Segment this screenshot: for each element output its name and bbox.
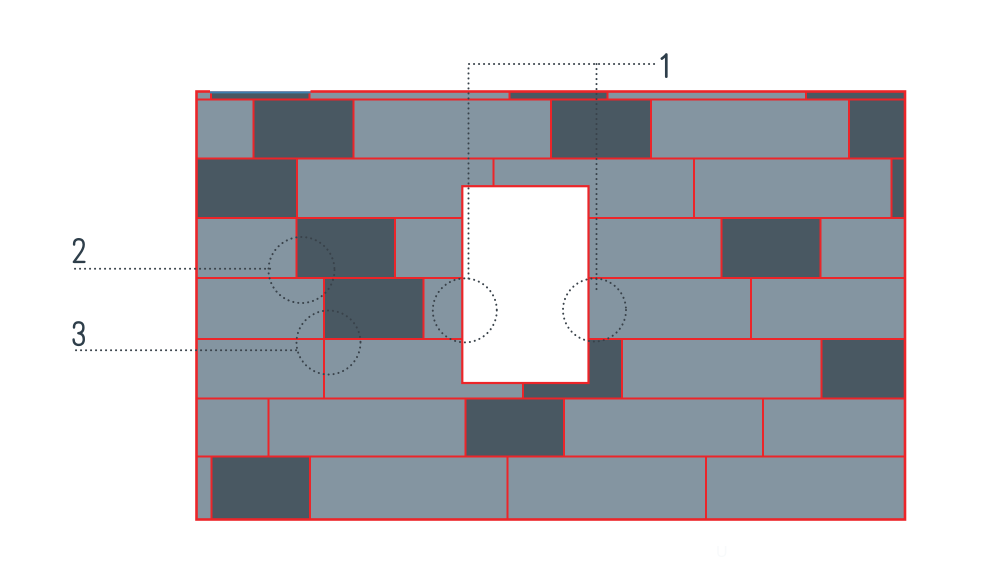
svg-text:U: U xyxy=(716,544,728,561)
